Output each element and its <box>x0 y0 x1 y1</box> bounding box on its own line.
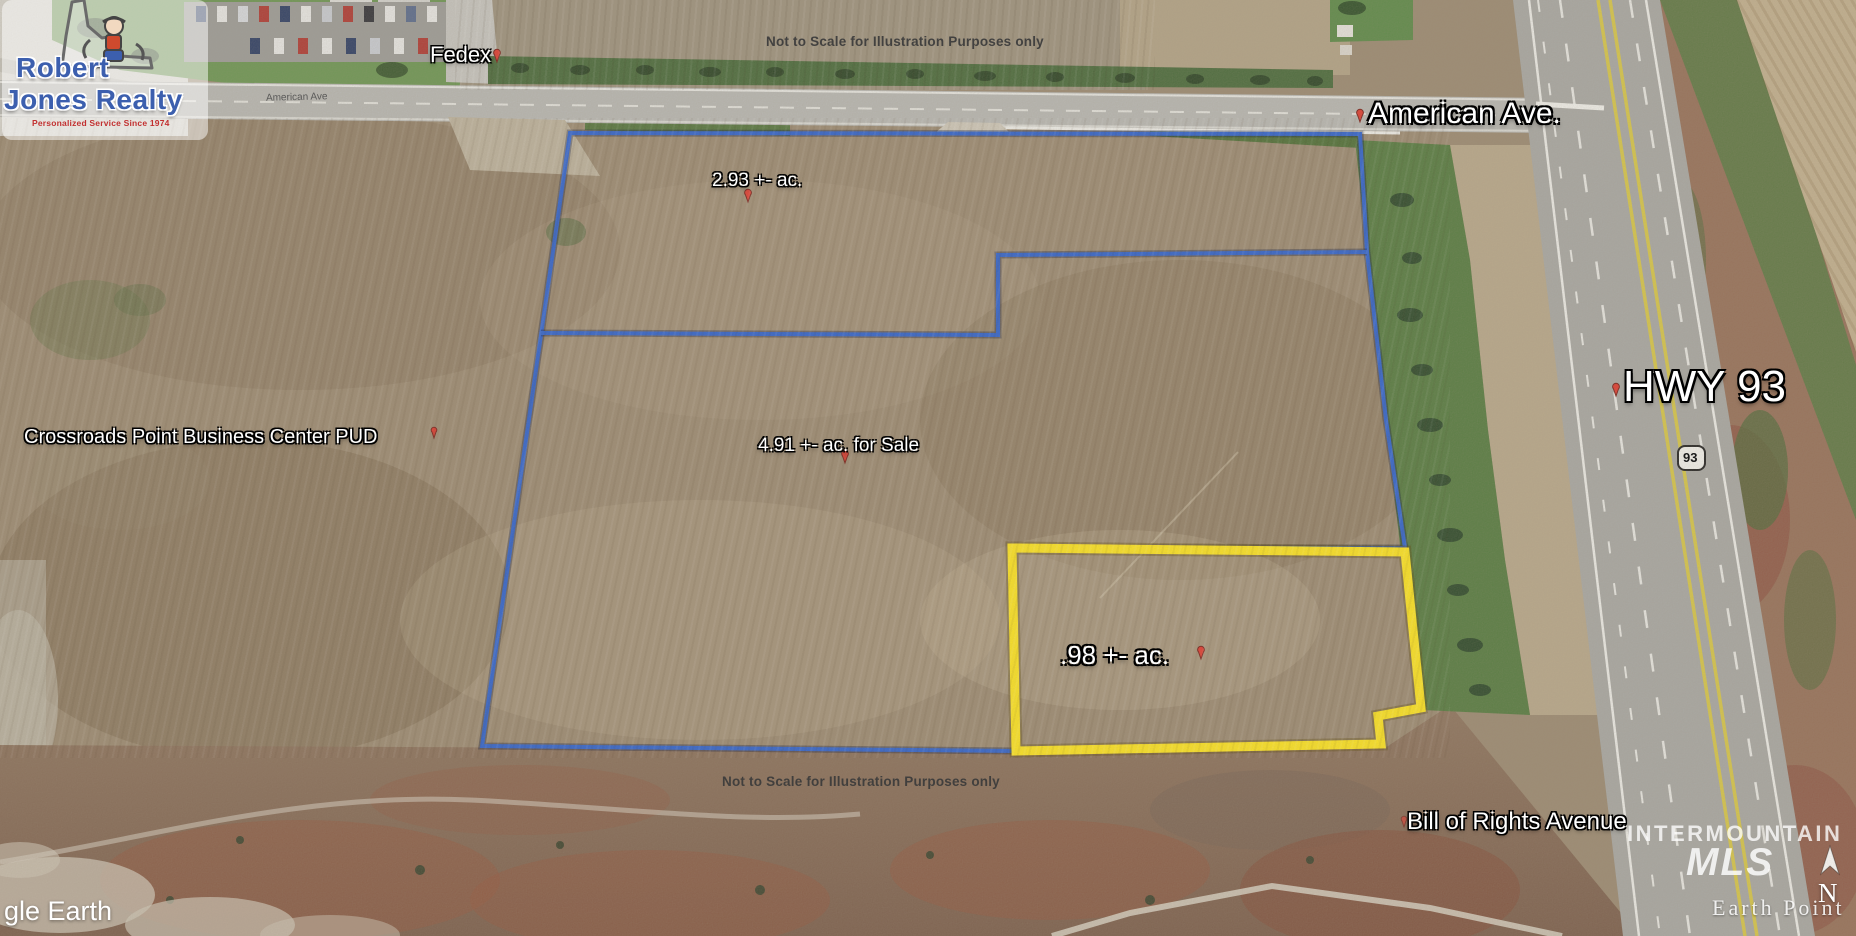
mls-watermark-abbrev: MLS <box>1686 841 1774 885</box>
realty-logo: Robert Jones Realty Personalized Service… <box>2 0 208 140</box>
fedex-label: Fedex <box>430 44 491 66</box>
photo-grain-overlay <box>0 0 1856 936</box>
route-shield-93-label: 93 <box>1683 451 1697 464</box>
realty-name-line2: Jones Realty <box>4 84 183 116</box>
parcel-label-0-98-ac: .98 +- ac. <box>1060 642 1169 668</box>
parcel-label-2-93-ac: 2.93 +- ac. <box>712 171 802 190</box>
realty-name-line1: Robert <box>16 52 109 84</box>
google-earth-watermark: gle Earth <box>4 898 112 925</box>
american-ave-label: American Ave. <box>1368 99 1561 129</box>
crossroads-pud-label: Crossroads Point Business Center PUD <box>24 427 377 447</box>
disclaimer-bottom: Not to Scale for Illustration Purposes o… <box>722 775 1000 789</box>
american-ave-road-label: American Ave <box>266 92 328 104</box>
terrain-and-roads-layer <box>0 0 1856 936</box>
aerial-parcel-map: Not to Scale for Illustration Purposes o… <box>0 0 1856 936</box>
disclaimer-top: Not to Scale for Illustration Purposes o… <box>766 35 1044 49</box>
north-letter: N <box>1818 880 1838 907</box>
hwy-93-label: HWY 93 <box>1623 365 1786 409</box>
parcel-label-4-91-ac: 4.91 +- ac. for Sale <box>758 436 919 455</box>
realty-tagline: Personalized Service Since 1974 <box>32 118 170 128</box>
bill-of-rights-label: Bill of Rights Avenue <box>1407 810 1627 834</box>
